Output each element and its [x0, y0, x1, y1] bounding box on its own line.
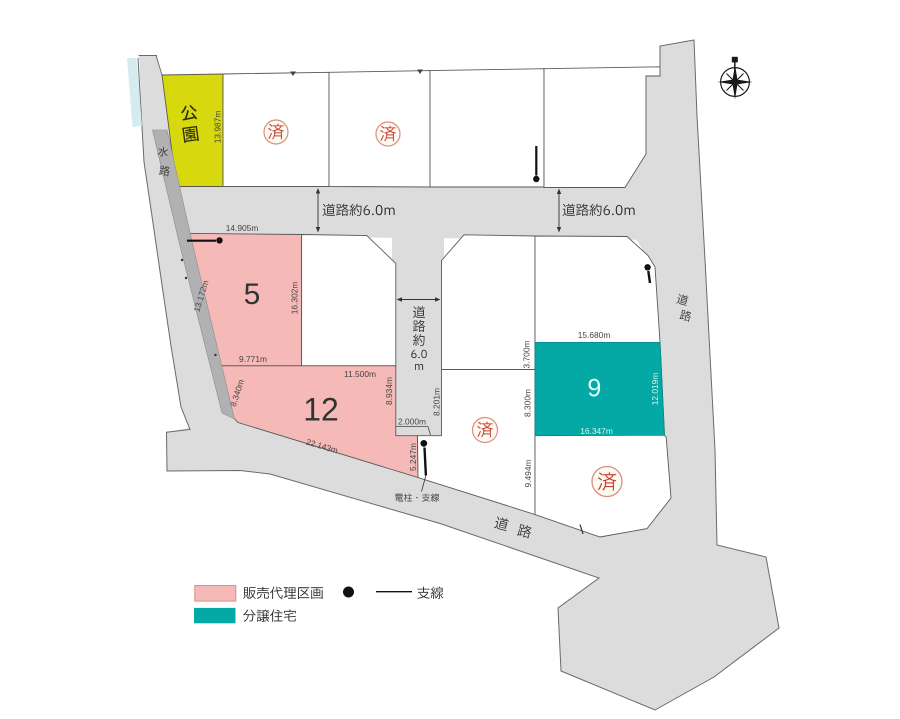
svg-text:8.300m: 8.300m — [523, 389, 533, 417]
svg-text:9.494m: 9.494m — [523, 460, 533, 488]
svg-text:12.019m: 12.019m — [650, 373, 660, 406]
svg-text:16.302m: 16.302m — [290, 282, 300, 315]
svg-text:3.700m: 3.700m — [522, 341, 532, 369]
svg-text:15.680m: 15.680m — [578, 330, 611, 340]
svg-text:8.201m: 8.201m — [432, 388, 442, 416]
svg-text:11.500m: 11.500m — [344, 369, 376, 379]
svg-text:9.771m: 9.771m — [239, 354, 267, 364]
svg-text:13.987m: 13.987m — [213, 111, 223, 144]
svg-text:2.000m: 2.000m — [398, 417, 426, 427]
svg-text:5: 5 — [244, 278, 261, 311]
svg-text:14.905m: 14.905m — [226, 223, 259, 233]
svg-text:9: 9 — [587, 375, 601, 403]
svg-text:8.934m: 8.934m — [384, 377, 394, 405]
svg-text:12: 12 — [303, 392, 339, 428]
svg-text:16.347m: 16.347m — [580, 426, 613, 436]
svg-text:5.247m: 5.247m — [408, 443, 418, 471]
